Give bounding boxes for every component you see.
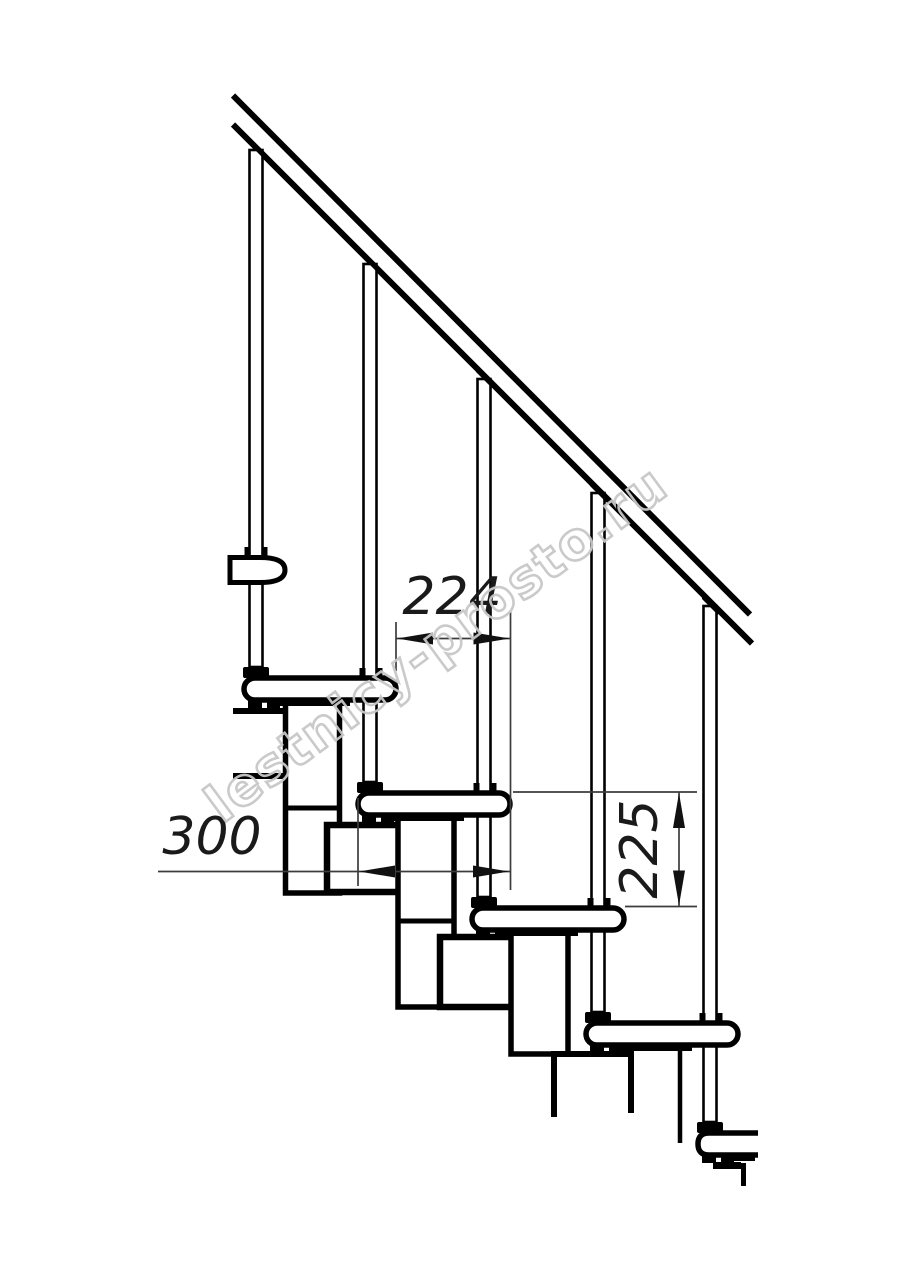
fastener-nub bbox=[609, 1046, 622, 1053]
fastener-bar bbox=[394, 814, 464, 821]
fastener-nub bbox=[702, 1154, 716, 1163]
baluster-foot bbox=[585, 1012, 611, 1023]
baluster-foot bbox=[357, 782, 383, 793]
module-column-3 bbox=[511, 926, 568, 1054]
fastener-nub bbox=[590, 1044, 604, 1053]
collar-tick bbox=[245, 547, 251, 557]
fastener-bar bbox=[734, 1154, 755, 1161]
staircase-technical-drawing: 224 300 225 lestnicy-prosto.ru bbox=[0, 0, 914, 1280]
fastener-bar bbox=[622, 1044, 692, 1051]
watermark-text: lestnicy-prosto.ru bbox=[195, 454, 680, 834]
fastener-nub bbox=[248, 699, 262, 708]
fastener-nub bbox=[476, 929, 490, 938]
collar-tick bbox=[262, 547, 268, 557]
tread-4 bbox=[586, 1023, 738, 1045]
fastener-nub bbox=[381, 816, 394, 823]
arrowhead-down bbox=[673, 871, 685, 906]
handrail bbox=[233, 96, 752, 644]
module-box-3 bbox=[440, 937, 517, 1007]
dimension-label-225: 225 bbox=[610, 799, 670, 898]
module-box-4 bbox=[554, 1054, 631, 1117]
baluster-foot bbox=[471, 897, 497, 908]
arrowhead-up bbox=[673, 793, 685, 828]
bottom-hook-bracket bbox=[713, 1163, 744, 1186]
landing-bracket bbox=[230, 558, 285, 583]
module-box-2 bbox=[327, 825, 405, 892]
fastener-nub bbox=[721, 1156, 734, 1163]
staircase-drawing-page: 224 300 225 lestnicy-prosto.ru bbox=[0, 0, 914, 1280]
baluster-4 bbox=[592, 493, 605, 1012]
tread-3 bbox=[472, 908, 624, 930]
baluster-1 bbox=[250, 150, 263, 667]
fastener-nub bbox=[267, 701, 280, 708]
fastener-nub bbox=[495, 931, 508, 938]
fastener-nub bbox=[362, 814, 376, 823]
baluster-foot bbox=[243, 667, 269, 678]
collar-tick bbox=[474, 783, 480, 793]
collar-tick bbox=[491, 783, 497, 793]
tread-2 bbox=[358, 793, 510, 815]
tread-5-partial bbox=[698, 1133, 758, 1155]
collar-tick bbox=[700, 1013, 706, 1023]
collar-tick bbox=[717, 1013, 723, 1023]
collar-tick bbox=[588, 898, 594, 908]
baluster-foot bbox=[697, 1122, 723, 1133]
fastener-bar bbox=[508, 929, 578, 936]
